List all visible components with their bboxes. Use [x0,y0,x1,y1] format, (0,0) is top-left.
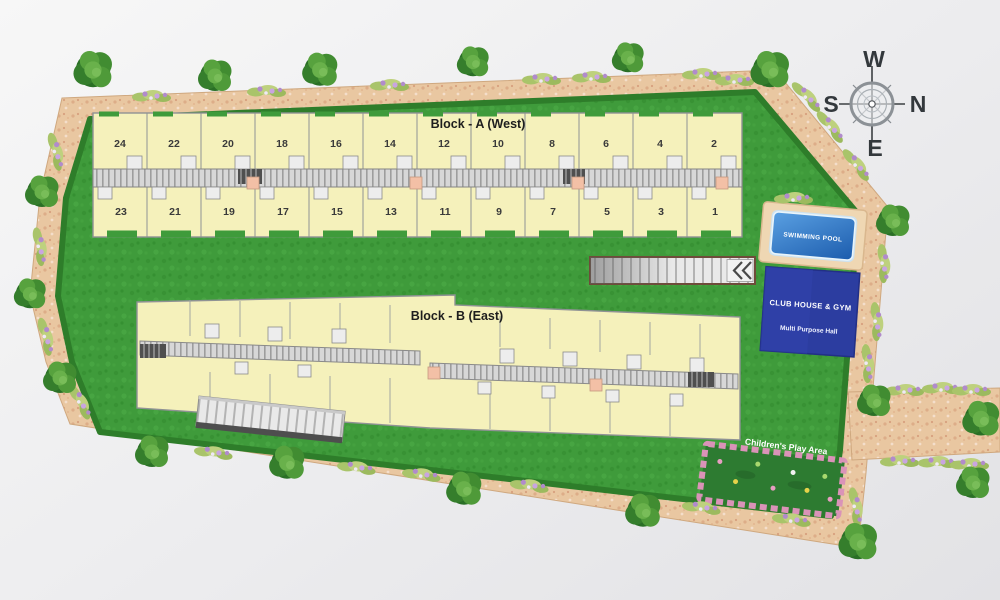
unit-number: 6 [603,138,609,150]
block-b-label: Block - B (East) [411,309,503,323]
tree-icon [25,176,59,208]
compass-south-label: S [823,91,838,117]
tree-icon [302,53,337,86]
club-house: CLUB HOUSE & GYM Multi Purpose Hall [760,267,860,357]
unit-number: 11 [439,206,450,218]
unit-number: 12 [438,138,450,150]
unit-number: 14 [384,138,396,150]
unit-number: 17 [277,206,289,218]
unit-number: 18 [276,138,288,150]
unit-number: 7 [550,206,556,218]
unit-number: 13 [385,206,397,218]
unit-number: 8 [549,138,555,150]
unit-number: 22 [168,138,180,150]
unit-number: 24 [114,138,126,150]
unit-number: 2 [711,138,717,150]
driveway-ramp-east [590,257,755,284]
tree-icon [457,46,489,76]
unit-number: 4 [657,138,663,150]
compass-west-label: W [863,46,885,72]
site-plan-canvas: SWIMMING POOL CLUB HOUSE & GYM Multi Pur… [0,0,1000,600]
compass-north-label: N [910,91,927,117]
tree-icon [612,42,644,72]
swimming-pool: SWIMMING POOL [759,202,868,271]
block-a-label: Block - A (West) [431,117,526,131]
unit-number: 19 [223,206,235,218]
block-a-building [93,112,742,238]
unit-number: 23 [115,206,127,218]
tree-icon [198,60,232,92]
unit-number: 9 [496,206,502,218]
tree-icon [135,436,169,468]
unit-number: 15 [331,206,343,218]
tree-icon [750,51,789,87]
unit-number: 3 [658,206,664,218]
unit-number: 10 [492,138,504,150]
compass-east-label: E [867,135,882,161]
tree-icon [14,278,46,308]
unit-number: 21 [169,206,181,218]
tree-icon [956,467,990,499]
unit-number: 5 [604,206,610,218]
compass-rose: W S N E [823,46,926,161]
unit-number: 16 [330,138,342,150]
unit-number: 1 [712,206,718,218]
tree-icon [73,51,112,87]
unit-number: 20 [222,138,234,150]
site-plan: SWIMMING POOL CLUB HOUSE & GYM Multi Pur… [0,0,1000,600]
